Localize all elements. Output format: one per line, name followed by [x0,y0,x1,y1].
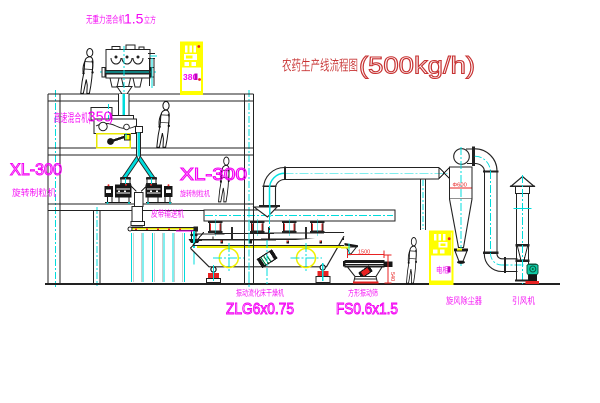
svg-text:ZLG6x0.75: ZLG6x0.75 [226,301,294,318]
svg-text:1.5: 1.5 [124,11,144,27]
svg-text:): ) [109,110,113,125]
svg-text:540: 540 [389,272,395,281]
svg-text:1500: 1500 [358,250,370,256]
svg-text:(500kg/h): (500kg/h) [359,53,475,80]
svg-text:FS0.6x1.5: FS0.6x1.5 [336,301,398,318]
svg-text:XL-300: XL-300 [10,161,62,179]
svg-text:XL-300: XL-300 [180,164,247,184]
